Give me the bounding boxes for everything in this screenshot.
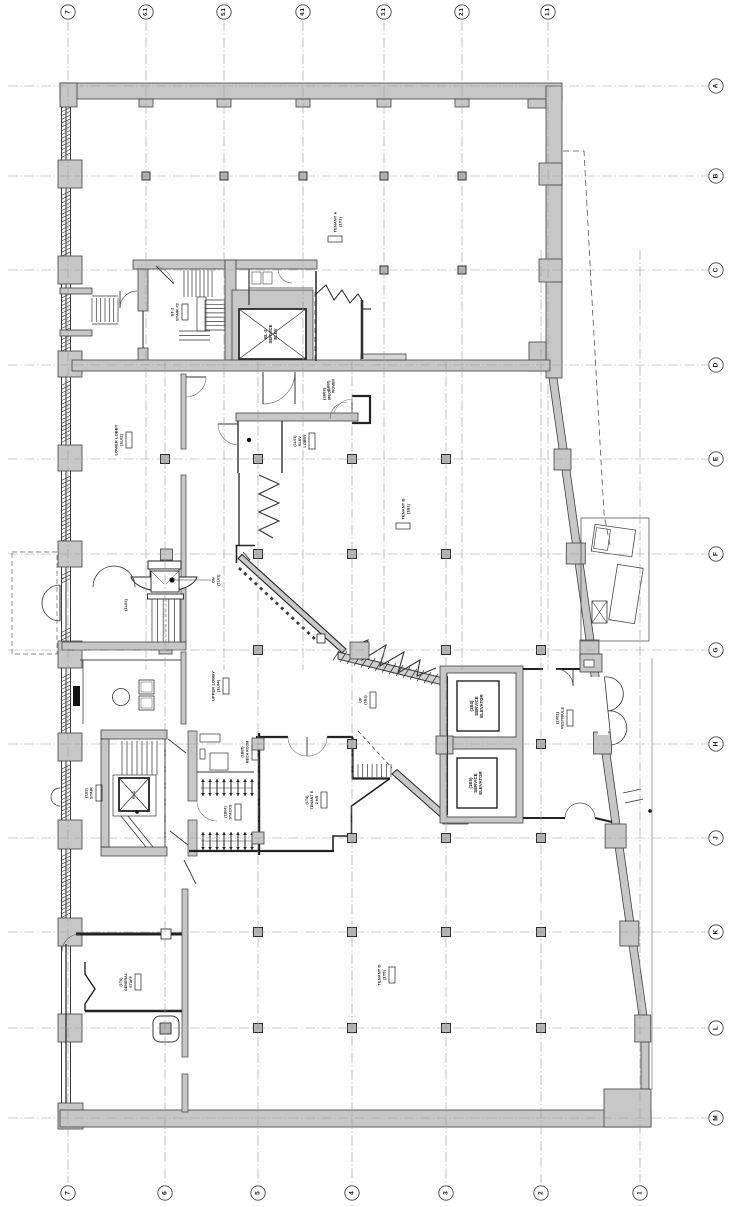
svg-text:EL-3: EL-3 bbox=[132, 791, 136, 799]
svg-text:7: 7 bbox=[65, 10, 72, 14]
svg-text:1: 1 bbox=[637, 1191, 644, 1195]
svg-text:STAIR #2: STAIR #2 bbox=[175, 302, 180, 321]
svg-text:ELEVATOR: ELEVATOR bbox=[479, 693, 484, 717]
svg-text:(1S3): (1S3) bbox=[84, 787, 88, 797]
svg-text:(1L01): (1L01) bbox=[217, 574, 221, 586]
svg-text:B: B bbox=[713, 173, 720, 178]
svg-text:6.1: 6.1 bbox=[143, 8, 149, 16]
svg-text:L: L bbox=[713, 1026, 720, 1030]
svg-text:5.1: 5.1 bbox=[221, 8, 227, 16]
svg-text:4.1: 4.1 bbox=[300, 8, 306, 16]
svg-text:E: E bbox=[713, 456, 720, 461]
svg-text:2.1: 2.1 bbox=[459, 8, 465, 16]
svg-text:(1L04): (1L04) bbox=[216, 679, 221, 692]
svg-text:M: M bbox=[713, 1115, 720, 1120]
svg-text:(1L03): (1L03) bbox=[293, 435, 297, 447]
svg-text:4: 4 bbox=[349, 1191, 356, 1195]
svg-text:1.1: 1.1 bbox=[545, 8, 551, 16]
svg-text:ELEV: ELEV bbox=[298, 436, 302, 446]
svg-text:WOMEN: WOMEN bbox=[332, 379, 336, 393]
svg-text:F: F bbox=[713, 552, 720, 556]
svg-text:(1B06): (1B06) bbox=[326, 381, 330, 392]
svg-text:J: J bbox=[713, 836, 720, 840]
svg-text:2: 2 bbox=[538, 1191, 545, 1195]
svg-text:(1B1): (1B1) bbox=[406, 503, 411, 514]
svg-text:(1T5): (1T5) bbox=[382, 969, 387, 980]
svg-text:STAIR: STAIR bbox=[90, 787, 94, 799]
svg-text:3.1: 3.1 bbox=[381, 8, 387, 16]
svg-text:ELEVATOR: ELEVATOR bbox=[478, 770, 483, 794]
svg-text:DN: DN bbox=[211, 577, 215, 583]
svg-text:H: H bbox=[713, 741, 720, 746]
svg-text:ELEV: ELEV bbox=[273, 328, 278, 339]
svg-text:UP: UP bbox=[358, 697, 362, 703]
svg-text:GENERAL: GENERAL bbox=[124, 972, 128, 991]
svg-text:VESTIBULE: VESTIBULE bbox=[561, 707, 565, 730]
svg-text:K: K bbox=[713, 929, 720, 934]
svg-text:(1T6): (1T6) bbox=[119, 977, 123, 987]
svg-text:7: 7 bbox=[65, 1191, 72, 1195]
svg-text:(1T1): (1T1) bbox=[338, 216, 343, 227]
svg-text:C: C bbox=[713, 267, 720, 272]
svg-text:(1B05): (1B05) bbox=[240, 747, 244, 758]
svg-text:(1L01): (1L01) bbox=[124, 598, 128, 610]
svg-text:D: D bbox=[713, 362, 720, 367]
svg-text:(1V01): (1V01) bbox=[555, 711, 559, 724]
svg-text:(1B1): (1B1) bbox=[364, 695, 368, 705]
svg-text:6: 6 bbox=[162, 1191, 169, 1195]
svg-text:TENANT E: TENANT E bbox=[310, 790, 314, 809]
svg-text:(1B04): (1B04) bbox=[223, 806, 227, 818]
svg-text:3: 3 bbox=[443, 1191, 450, 1195]
svg-text:5: 5 bbox=[255, 1191, 262, 1195]
svg-text:(1L02): (1L02) bbox=[119, 433, 124, 446]
svg-text:2 HR: 2 HR bbox=[315, 795, 319, 804]
svg-text:LOBBY: LOBBY bbox=[303, 434, 307, 448]
svg-text:A: A bbox=[713, 83, 720, 88]
svg-text:STAFF: STAFF bbox=[129, 975, 133, 988]
svg-text:(1T4): (1T4) bbox=[305, 795, 309, 805]
svg-text:STACKS: STACKS bbox=[229, 804, 233, 820]
svg-text:G: G bbox=[713, 647, 720, 652]
